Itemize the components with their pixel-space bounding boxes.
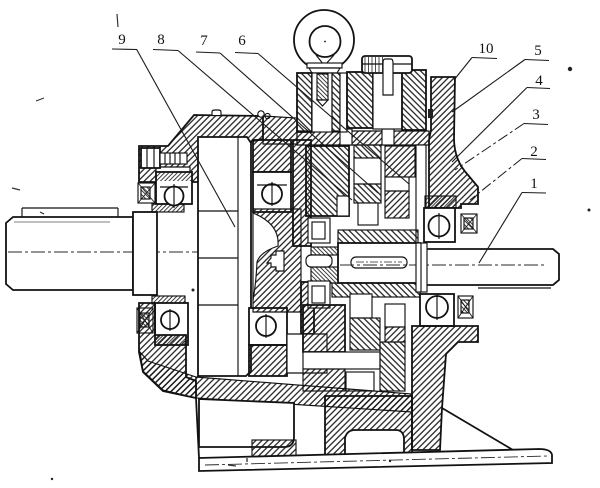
svg-text:6: 6 (238, 33, 246, 49)
svg-text:3: 3 (532, 107, 540, 123)
svg-text:10: 10 (479, 41, 494, 57)
svg-text:9: 9 (118, 32, 126, 48)
svg-text:7: 7 (200, 33, 208, 49)
svg-text:2: 2 (530, 144, 538, 160)
svg-text:8: 8 (157, 32, 165, 48)
svg-text:5: 5 (534, 43, 542, 59)
svg-text:4: 4 (535, 73, 543, 89)
svg-text:1: 1 (530, 176, 538, 192)
